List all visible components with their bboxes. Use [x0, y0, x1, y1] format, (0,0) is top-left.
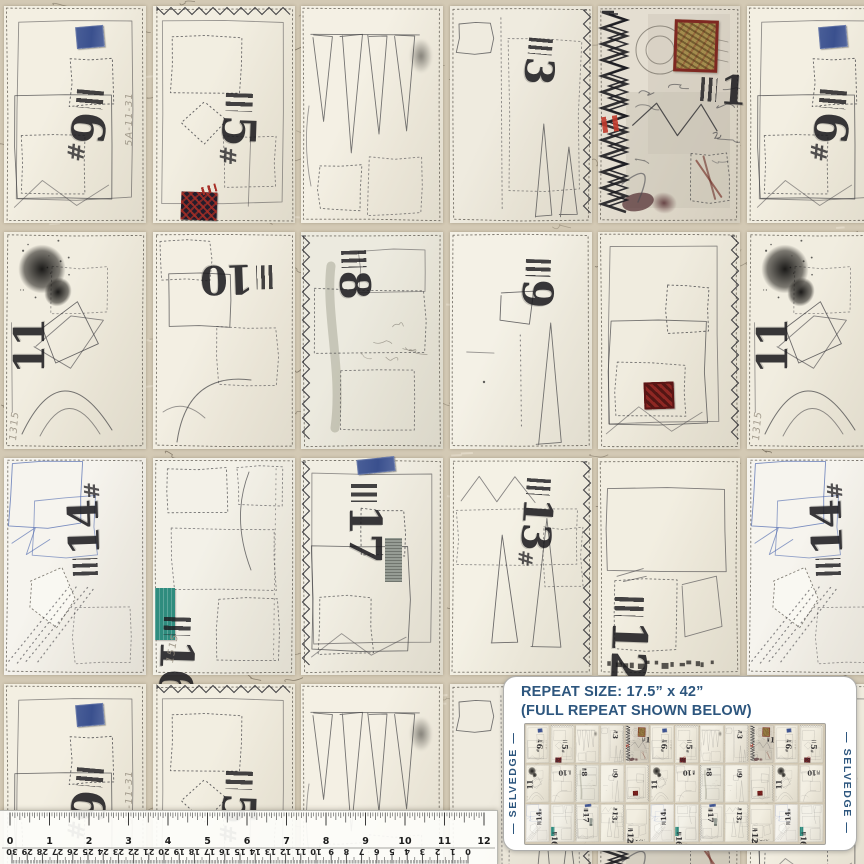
panel-sketch — [750, 804, 774, 842]
smudge-scrap — [405, 710, 437, 758]
fabric-panel-r1c1: 10 — [153, 232, 295, 449]
teal-scrap — [155, 588, 175, 640]
cm-label: 16 — [219, 847, 231, 857]
cm-label: 26 — [67, 847, 79, 857]
fabric-panel-r0c3: 3 — [600, 725, 624, 763]
maroon-scrap — [804, 757, 810, 762]
fabric-panel-r2c2: 17 — [575, 804, 599, 842]
fabric-panel-r2c1: 161515 — [799, 804, 823, 842]
cm-label: 20 — [158, 847, 170, 857]
panel-sketch — [450, 458, 592, 675]
fabric-panel-r1c0: 111315 — [775, 765, 799, 803]
fabric-panel-r2c0: 14# — [775, 804, 799, 842]
inch-label: 4 — [165, 836, 172, 847]
panel-sketch — [700, 804, 724, 842]
cm-label: 28 — [36, 847, 48, 857]
cm-label: 9 — [328, 847, 334, 857]
fabric-panel-r2c1: 161515 — [551, 804, 575, 842]
fabric-panel-r0c0: 6#5A-11-31 — [4, 6, 146, 223]
cm-label: 11 — [295, 847, 307, 857]
inch-label: 12 — [477, 836, 490, 847]
fabric-panel-r0c0: 6#5A-11-31 — [747, 6, 864, 223]
handwriting-note: 1315 — [651, 796, 653, 801]
panel-sketch — [153, 232, 295, 449]
cm-label: 12 — [280, 847, 291, 857]
selvedge-label-right: — SELVEDGE — — [838, 721, 853, 845]
fabric-panel-r2c2: 17 — [301, 458, 443, 675]
fabric-panel-r1c4 — [598, 232, 740, 449]
cm-label: 27 — [52, 847, 64, 857]
repeat-size-text: REPEAT SIZE: 17.5” x 42” — [521, 684, 704, 700]
cm-label: 22 — [128, 847, 139, 857]
inch-label: 3 — [125, 836, 132, 847]
fabric-panel-r1c1: 10 — [799, 765, 823, 803]
panel-sketch — [450, 232, 592, 449]
inch-label: 10 — [398, 836, 412, 847]
blue-scrap — [786, 728, 791, 732]
blue-scrap — [538, 728, 543, 732]
fabric-panel-r0c0: 6#5A-11-31 — [650, 725, 674, 763]
fabric-panel-r2c1: 161515 — [153, 458, 295, 675]
inch-label: 5 — [204, 836, 211, 847]
panel-sketch — [725, 765, 749, 803]
maroon-scrap — [555, 757, 561, 762]
gold-scrap — [673, 19, 719, 73]
fabric-panel-r0c4: 1 — [750, 725, 774, 763]
cm-label: 29 — [21, 847, 33, 857]
smudge-scrap — [717, 730, 722, 738]
fabric-panel-r1c4 — [625, 765, 649, 803]
cm-label: 3 — [419, 847, 425, 857]
fabric-panel-r0c4: 1 — [625, 725, 649, 763]
cm-label: 4 — [404, 847, 410, 857]
panel-sketch — [551, 725, 575, 763]
smudge-scrap — [593, 730, 598, 738]
fabric-panel-r0c1: 5# — [675, 725, 699, 763]
inch-label: 0 — [7, 836, 14, 847]
panel-sketch — [598, 232, 740, 449]
panel-sketch — [153, 6, 295, 223]
fabric-panel-r0c0: 6#5A-11-31 — [526, 725, 550, 763]
fabric-panel-r0c1: 5# — [153, 6, 295, 223]
inch-label: 2 — [86, 836, 93, 847]
fabric-panel-r2c1: 161515 — [675, 804, 699, 842]
cm-label: 24 — [97, 847, 109, 857]
redstamp-scrap — [644, 381, 675, 409]
cm-label: 10 — [310, 847, 322, 857]
panel-sketch — [600, 804, 624, 842]
cm-label: 21 — [143, 847, 155, 857]
cm-label: 7 — [358, 847, 364, 857]
fabric-panel-r2c0: 14# — [747, 458, 864, 675]
fabric-panel-r1c4 — [750, 765, 774, 803]
fabric-panel-r2c4: 12 — [625, 804, 649, 842]
redmark-scrap — [750, 744, 753, 747]
redmark-scrap — [601, 115, 621, 133]
fabric-panel-r0c4: 1 — [598, 6, 740, 223]
panel-sketch — [450, 6, 592, 223]
panel-sketch — [650, 804, 674, 842]
fabric-panel-r0c3: 3 — [725, 725, 749, 763]
cm-label: 5 — [389, 847, 395, 857]
repeat-info-box: REPEAT SIZE: 17.5” x 42” (FULL REPEAT SH… — [503, 676, 857, 851]
fabric-panel-r2c3: 13# — [725, 804, 749, 842]
fabric-panel-r2c4: 12 — [750, 804, 774, 842]
panel-sketch — [575, 765, 599, 803]
cm-label: 14 — [249, 847, 261, 857]
cm-label: 1 — [450, 847, 456, 857]
fabric-swatch-photo: 6#5A-11-315#316#5A-11-311113151089111315… — [0, 0, 864, 864]
fabric-panel-r1c3: 9 — [450, 232, 592, 449]
fabric-panel-r0c0: 6#5A-11-31 — [775, 725, 799, 763]
gold-scrap — [762, 727, 770, 736]
maroon-scrap — [680, 757, 686, 762]
fabric-panel-r1c2: 8 — [700, 765, 724, 803]
cm-label: 13 — [264, 847, 276, 857]
panel-sketch — [301, 232, 443, 449]
panel-sketch — [725, 725, 749, 763]
panel-sketch — [799, 725, 823, 763]
full-repeat-preview: 6#5A-11-315#316#5A-11-315#316#5A-11-315#… — [524, 723, 826, 845]
fabric-panel-r2c3: 13# — [450, 458, 592, 675]
cm-label: 30 — [6, 847, 18, 857]
cm-label: 18 — [188, 847, 200, 857]
fabric-panel-r1c1: 10 — [675, 765, 699, 803]
cm-label: 17 — [204, 847, 216, 857]
gray-scrap — [590, 818, 593, 826]
handwriting-note: 5A-11-31 — [124, 92, 135, 146]
smudge-scrap — [405, 32, 437, 80]
panel-sketch — [526, 804, 550, 842]
cm-label: 19 — [173, 847, 185, 857]
panel-sketch — [600, 725, 624, 763]
gray-scrap — [714, 818, 717, 826]
fabric-panel-r2c0: 14# — [650, 804, 674, 842]
cm-label: 15 — [234, 847, 246, 857]
redstamp-scrap — [757, 791, 762, 796]
fabric-panel-r2c0: 14# — [526, 804, 550, 842]
full-repeat-artwork: 6#5A-11-315#316#5A-11-315#316#5A-11-315#… — [525, 724, 825, 844]
fabric-panel-r1c2: 8 — [301, 232, 443, 449]
handwriting-note: 5A-11-31 — [670, 740, 672, 749]
panel-sketch — [301, 458, 443, 675]
maroon-scrap — [180, 191, 217, 220]
panel-sketch — [700, 765, 724, 803]
panel-sketch — [750, 765, 774, 803]
fabric-panel-r1c1: 10 — [551, 765, 575, 803]
redmark-scrap — [626, 744, 629, 747]
full-repeat-text: (FULL REPEAT SHOWN BELOW) — [521, 703, 752, 719]
cm-label: 0 — [465, 847, 471, 857]
fabric-panel-r2c0: 14# — [4, 458, 146, 675]
panel-sketch — [775, 804, 799, 842]
fabric-panel-r1c3: 9 — [725, 765, 749, 803]
handwriting-note: 5A-11-31 — [795, 740, 797, 749]
ruler-scale: 0123456789101112302928272625242322212019… — [0, 811, 497, 864]
handwriting-note: 1315 — [751, 411, 765, 441]
blue-scrap — [818, 25, 848, 49]
panel-sketch — [575, 804, 599, 842]
redstamp-scrap — [633, 791, 638, 796]
panel-sketch — [675, 725, 699, 763]
blue-scrap — [75, 25, 105, 49]
fabric-panel-r0c1: 5# — [551, 725, 575, 763]
fabric-panel-r0c2 — [575, 725, 599, 763]
handwriting-note: 5A-11-31 — [546, 740, 548, 749]
inch-label: 1 — [46, 836, 53, 847]
fabric-panel-r0c2 — [700, 725, 724, 763]
cm-label: 25 — [82, 847, 94, 857]
fabric-panel-r1c0: 111315 — [526, 765, 550, 803]
fabric-panel-r0c1: 5# — [799, 725, 823, 763]
inch-cm-ruler: 0123456789101112302928272625242322212019… — [0, 810, 498, 864]
fabric-panel-r1c0: 111315 — [4, 232, 146, 449]
fabric-panel-r2c2: 17 — [700, 804, 724, 842]
gold-scrap — [638, 727, 646, 736]
panel-sketch — [625, 804, 649, 842]
blue-scrap — [662, 728, 667, 732]
fabric-panel-r1c2: 8 — [575, 765, 599, 803]
panel-sketch — [600, 765, 624, 803]
blue-scrap — [75, 703, 105, 727]
inch-label: 8 — [323, 836, 330, 847]
panel-sketch — [625, 765, 649, 803]
panel-sketch — [598, 458, 740, 675]
panel-sketch — [725, 804, 749, 842]
selvedge-label-left: — SELVEDGE — — [507, 721, 522, 845]
fabric-panel-r0c3: 3 — [450, 6, 592, 223]
cm-label: 2 — [435, 847, 441, 857]
fabric-panel-r1c0: 111315 — [650, 765, 674, 803]
cm-label: 8 — [343, 847, 349, 857]
panel-sketch — [675, 765, 699, 803]
panel-sketch — [747, 458, 864, 675]
inch-label: 11 — [438, 836, 451, 847]
inch-label: 6 — [244, 836, 251, 847]
fabric-panel-r1c0: 111315 — [747, 232, 864, 449]
inch-label: 9 — [362, 836, 369, 847]
panel-sketch — [799, 765, 823, 803]
inch-label: 7 — [283, 836, 290, 847]
panel-sketch — [4, 458, 146, 675]
cm-label: 6 — [374, 847, 380, 857]
fabric-panel-r1c3: 9 — [600, 765, 624, 803]
gray-scrap — [385, 538, 402, 582]
fabric-panel-r2c3: 13# — [600, 804, 624, 842]
cm-label: 23 — [112, 847, 124, 857]
fabric-panel-r0c2 — [301, 6, 443, 223]
fabric-panel-r2c4: 12 — [598, 458, 740, 675]
panel-sketch — [551, 765, 575, 803]
